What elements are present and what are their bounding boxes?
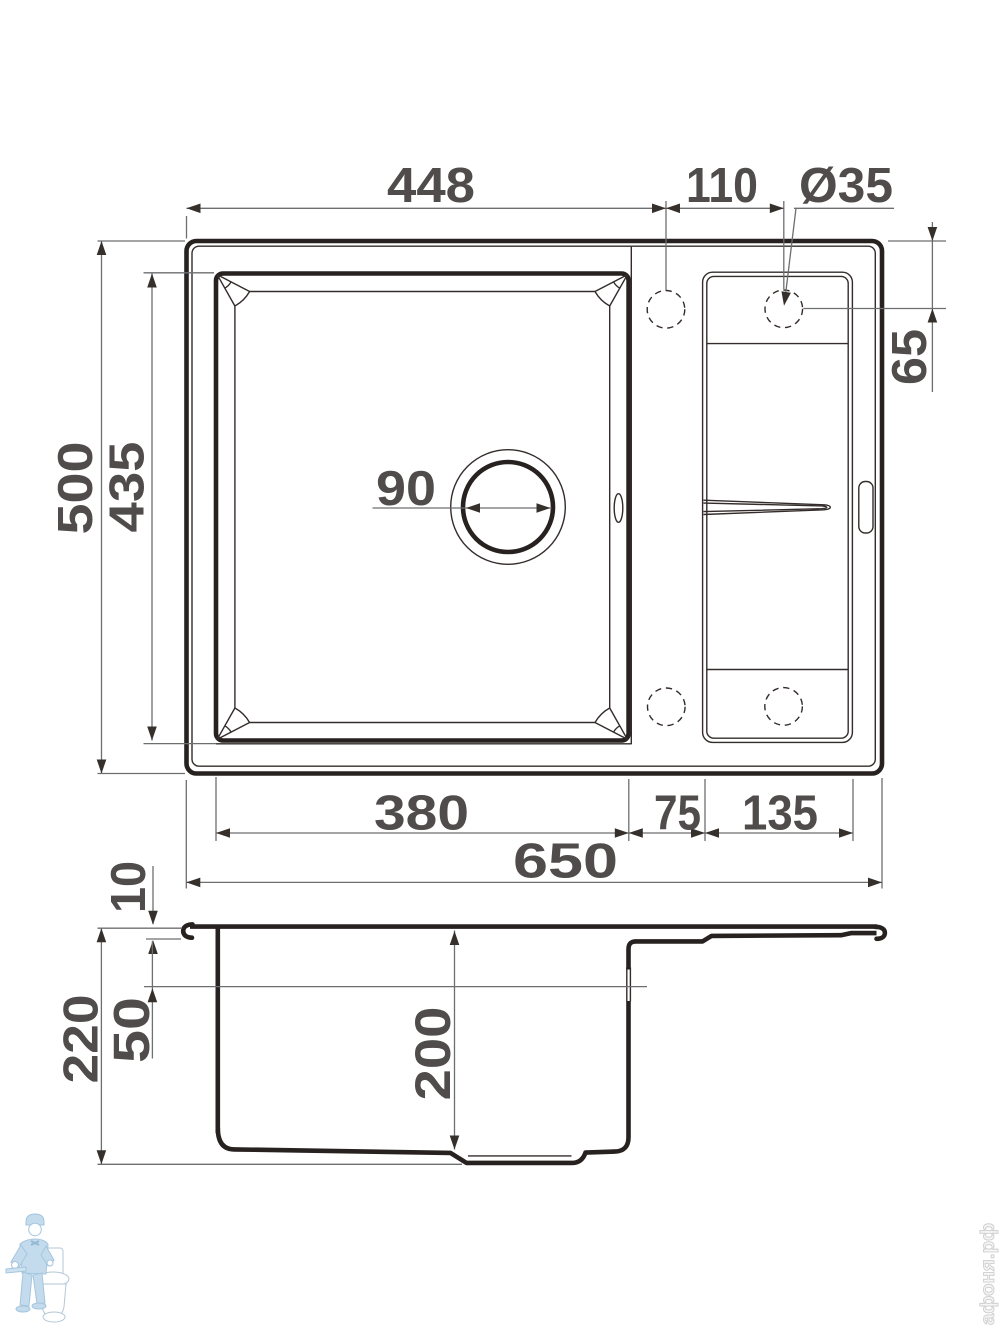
svg-text:200: 200 <box>405 1007 461 1101</box>
svg-text:афоня.рф: афоня.рф <box>978 1223 999 1325</box>
svg-text:Ø35: Ø35 <box>799 159 893 213</box>
svg-text:10: 10 <box>102 861 156 913</box>
svg-text:90: 90 <box>376 462 436 516</box>
svg-text:448: 448 <box>387 159 475 213</box>
svg-text:435: 435 <box>101 442 155 533</box>
svg-text:220: 220 <box>55 995 109 1084</box>
svg-text:75: 75 <box>654 787 701 841</box>
svg-text:500: 500 <box>49 442 103 535</box>
svg-text:50: 50 <box>103 997 160 1063</box>
svg-text:650: 650 <box>513 835 618 889</box>
svg-text:110: 110 <box>686 159 758 213</box>
svg-text:65: 65 <box>883 329 937 385</box>
svg-text:380: 380 <box>374 787 469 841</box>
svg-text:135: 135 <box>742 787 818 841</box>
